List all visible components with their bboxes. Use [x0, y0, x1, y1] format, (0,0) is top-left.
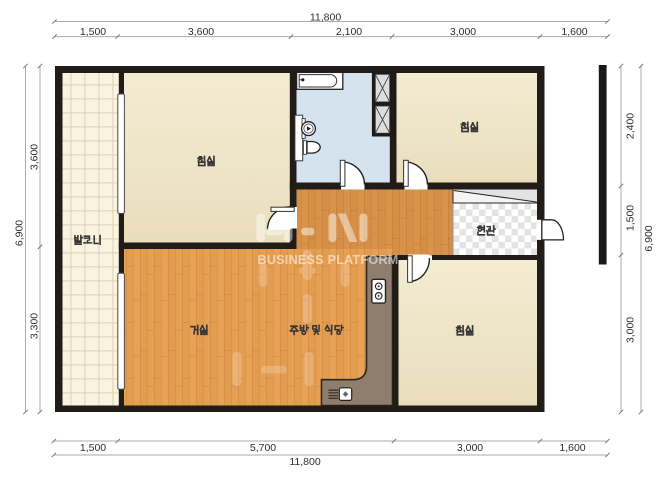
svg-text:3,000: 3,000 [450, 26, 476, 38]
svg-text:11,800: 11,800 [289, 456, 320, 468]
svg-text:BUSINESS PLATFORM: BUSINESS PLATFORM [258, 253, 399, 267]
svg-text:6,900: 6,900 [643, 225, 655, 251]
svg-text:3,300: 3,300 [29, 313, 41, 339]
svg-text:3,000: 3,000 [457, 442, 483, 454]
svg-text:1,500: 1,500 [80, 26, 106, 38]
svg-text:6,900: 6,900 [14, 220, 26, 246]
svg-text:1,500: 1,500 [80, 442, 106, 454]
svg-text:3,600: 3,600 [188, 26, 214, 38]
svg-text:3,000: 3,000 [625, 317, 637, 343]
svg-text:3,600: 3,600 [29, 144, 41, 170]
svg-text:11,800: 11,800 [310, 12, 341, 24]
svg-text:2,400: 2,400 [625, 113, 637, 139]
svg-text:1,500: 1,500 [625, 205, 637, 231]
svg-text:1,600: 1,600 [561, 26, 587, 38]
svg-text:2,100: 2,100 [336, 26, 362, 38]
svg-text:1,600: 1,600 [559, 442, 585, 454]
svg-text:5,700: 5,700 [250, 442, 276, 454]
